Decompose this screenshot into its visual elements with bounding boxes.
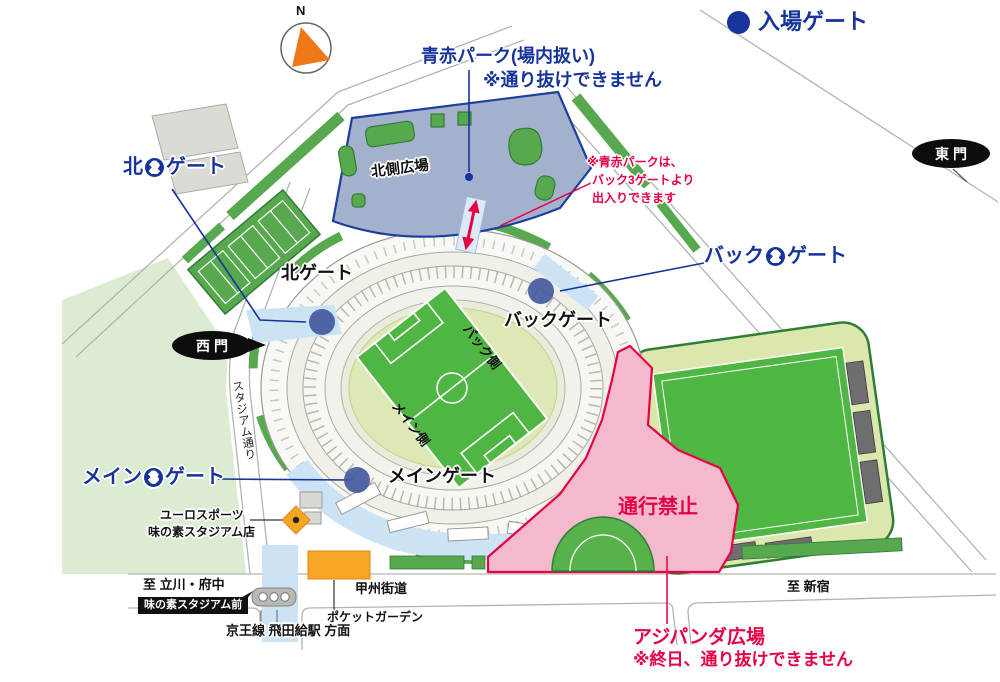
north2-suffix: ゲート	[166, 156, 226, 179]
aoaka-access-line2: バック3ゲートより	[587, 171, 694, 189]
aoaka-access-note: ※青赤パークは、 バック3ゲートより 出入りできます	[587, 153, 694, 207]
north2-gate-label: 北2ゲート	[123, 156, 226, 179]
no-entry-label: 通行禁止	[618, 496, 698, 519]
compass-icon	[281, 23, 331, 73]
back-gate-label: バックゲート	[504, 310, 612, 331]
back2-gate-label: バック2ゲート	[704, 245, 847, 268]
stadium-access-map: N 入場ゲート 青赤パーク(場内扱い) ※通り抜けできません ※青赤パークは、 …	[0, 0, 1000, 682]
north-gate-label: 北ゲート	[281, 263, 353, 284]
pocket-garden-label: ポケットガーデン	[327, 611, 423, 625]
ajipanda-note: ※終日、通り抜けできません	[633, 650, 853, 670]
keio-line-label: 京王線 飛田給駅 方面	[226, 624, 350, 639]
legend-entrance-gate-label: 入場ゲート	[758, 9, 868, 34]
legend-gate-dot	[727, 11, 750, 34]
euro-sports-label-1: ユーロスポーツ	[160, 509, 244, 523]
west-mon-badge: 西門	[172, 331, 252, 360]
bus-stop-label: 味の素スタジアム前	[138, 597, 248, 614]
to-shinjuku-label: 至 新宿	[787, 580, 830, 595]
to-tachikawa-label: 至 立川・府中	[143, 578, 225, 593]
aoaka-park-title: 青赤パーク(場内扱い)	[421, 46, 595, 67]
main3-prefix: メイン	[82, 466, 142, 489]
euro-sports-label-2: 味の素スタジアム店	[148, 526, 255, 540]
compass-north-label: N	[296, 4, 305, 19]
aoaka-park-note: ※通り抜けできません	[483, 70, 662, 91]
east-mon-badge: 東門	[912, 139, 990, 168]
koshu-kaido-label: 甲州街道	[355, 582, 407, 597]
back2-number-badge: 2	[766, 247, 785, 266]
main3-gate-label: メイン3ゲート	[82, 466, 225, 489]
aoaka-access-line1: ※青赤パークは、	[587, 153, 694, 171]
buildings	[152, 104, 248, 194]
north2-number-badge: 2	[145, 158, 164, 177]
north2-prefix: 北	[123, 156, 143, 179]
main3-number-badge: 3	[144, 468, 163, 487]
back2-prefix: バック	[704, 245, 764, 268]
back2-suffix: ゲート	[787, 245, 847, 268]
euro-sports-shop	[250, 506, 310, 534]
ajipanda-title: アジパンダ広場	[633, 627, 765, 649]
main-gate-label: メインゲート	[388, 466, 496, 487]
aoaka-access-line3: 出入りできます	[587, 189, 694, 207]
main3-suffix: ゲート	[165, 466, 225, 489]
